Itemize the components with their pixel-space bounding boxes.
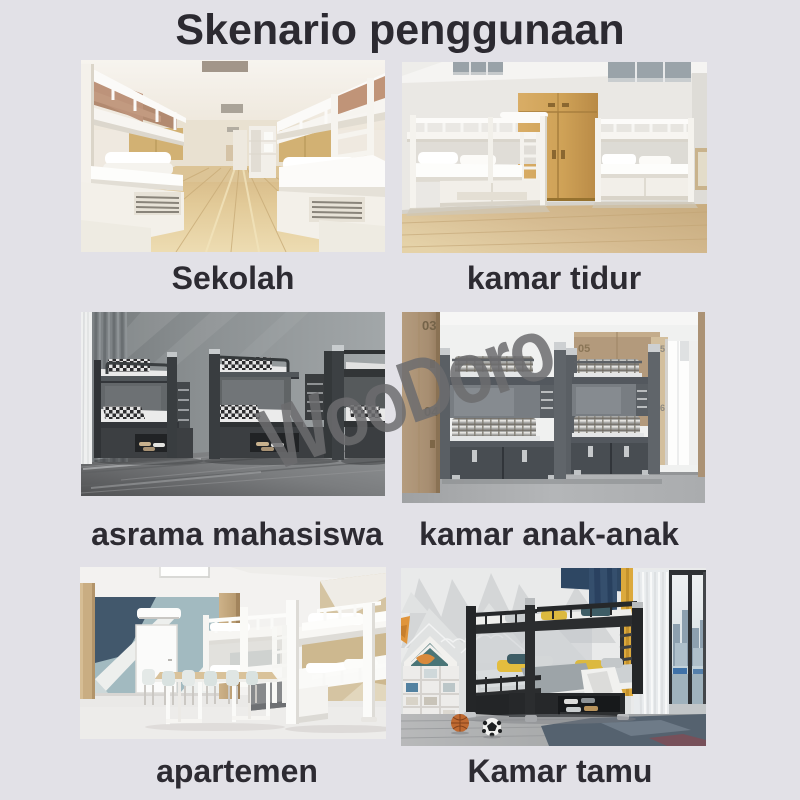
svg-text:03: 03	[422, 318, 436, 333]
svg-text:05: 05	[578, 343, 590, 355]
svg-text:04: 04	[424, 404, 439, 419]
